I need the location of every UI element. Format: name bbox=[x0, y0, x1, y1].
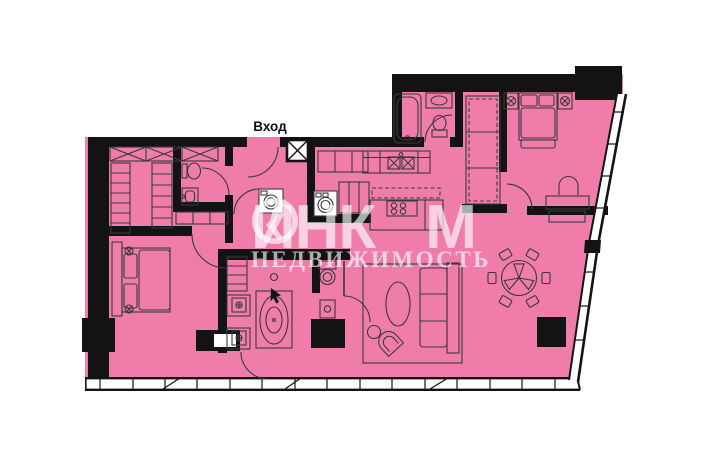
wall-bedroom-left-top bbox=[108, 226, 192, 236]
floor-plan-image: Вход ИНК М НЕДВИЖИМОСТЬ bbox=[0, 0, 701, 467]
entrance-label: Вход bbox=[246, 119, 294, 134]
shaft-wc2 bbox=[311, 319, 345, 348]
appliance-hall bbox=[259, 189, 283, 213]
wall-master-bath-top bbox=[218, 249, 350, 260]
wall-top-left-a bbox=[88, 137, 247, 147]
washing-machine-icon bbox=[314, 191, 337, 216]
wall-bath-top-right bbox=[455, 92, 463, 140]
column-living bbox=[537, 317, 566, 347]
floor-plan-drawing bbox=[0, 0, 701, 467]
wall-bedroom-right-south-a bbox=[462, 204, 507, 213]
window-mullion-block bbox=[584, 240, 601, 253]
wall-hall-a bbox=[225, 145, 233, 166]
pilaster-left bbox=[82, 318, 115, 352]
wall-bath-top-bottom-b bbox=[450, 137, 463, 147]
wall-hall-b bbox=[225, 195, 233, 243]
vent-shaft-icon bbox=[287, 140, 308, 161]
wall-closet-wc bbox=[173, 145, 181, 210]
chimney-block bbox=[575, 66, 622, 100]
